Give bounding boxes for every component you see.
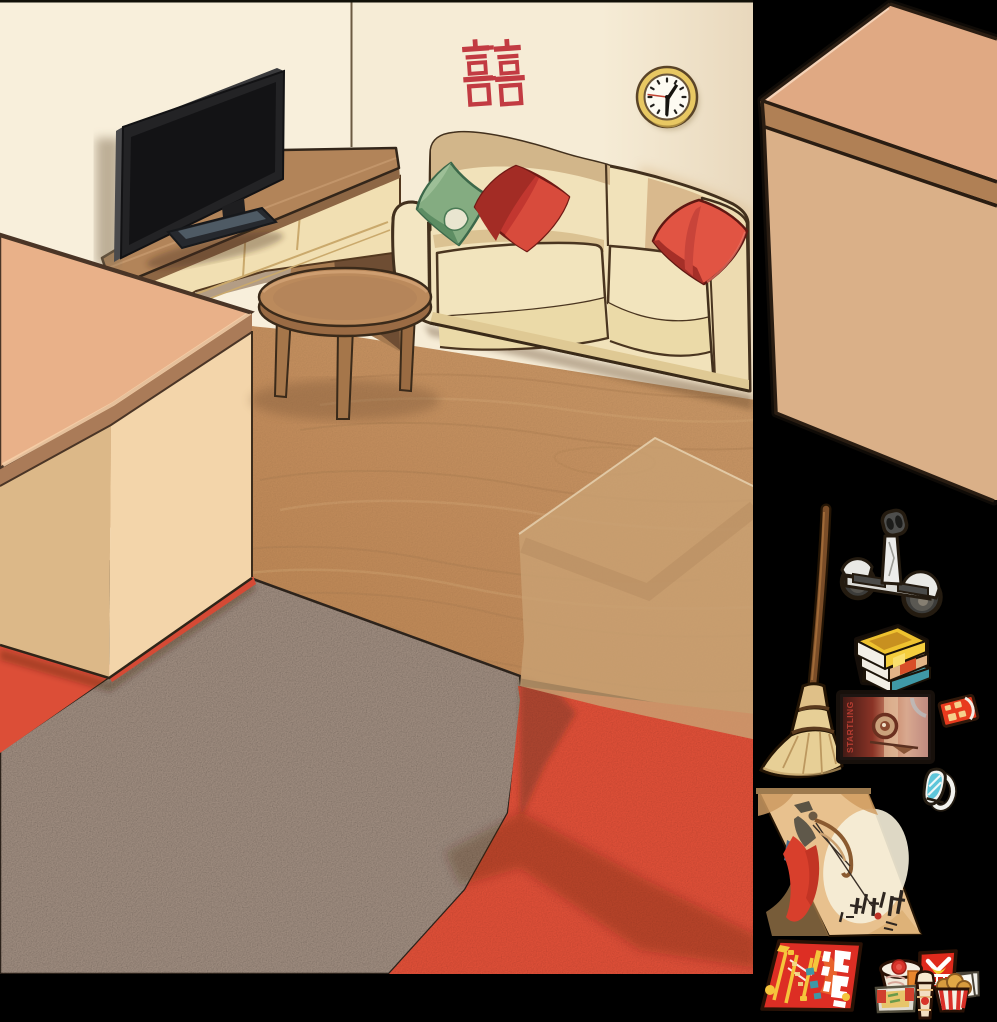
svg-text:STARTLING: STARTLING — [845, 701, 855, 753]
